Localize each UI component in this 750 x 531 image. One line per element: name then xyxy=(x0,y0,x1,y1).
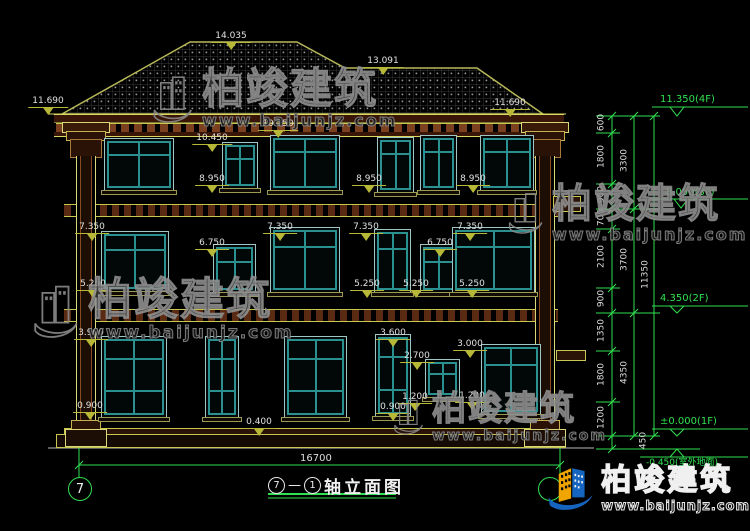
title-text: 轴立面图 xyxy=(324,473,404,498)
elevation-mark: 6.750 xyxy=(423,232,457,257)
dim-segment: 1800 xyxy=(598,358,607,392)
window xyxy=(205,336,239,418)
elevation-mark: 0.400 xyxy=(242,411,276,436)
cad-elevation-drawing: 14.035 13.091 11.690 11.690 10.450 10.25… xyxy=(0,0,750,531)
floor-band-2f xyxy=(64,309,558,322)
window xyxy=(270,135,340,191)
window xyxy=(481,344,541,415)
axis-circle-7: 7 xyxy=(268,477,285,494)
dim-subtotal: 3700 xyxy=(621,243,630,277)
floor-elevation-label: ±0.000(1F) xyxy=(660,417,717,427)
dim-segment: 1200 xyxy=(598,401,607,435)
elevation-mark: 2.700 xyxy=(400,345,434,370)
dim-segment: 900 xyxy=(598,282,607,316)
floor-elevation-label: 8.050(3F) xyxy=(666,188,715,198)
elevation-mark: 5.250 xyxy=(350,273,384,298)
floor-elevation-label: 11.350(4F) xyxy=(660,95,715,105)
elevation-mark: 6.750 xyxy=(195,232,229,257)
plinth-base xyxy=(56,434,566,448)
brand-logo: 柏竣建筑 www.baijunjz.com xyxy=(543,446,750,531)
brand-logo-text: 柏竣建筑 xyxy=(601,464,750,497)
elevation-mark: 3.000 xyxy=(453,333,487,358)
side-ledge xyxy=(556,350,586,361)
elevation-mark: 7.350 xyxy=(349,216,383,241)
elevation-mark: 11.690 xyxy=(28,90,68,115)
dim-subtotal: 4350 xyxy=(621,356,630,390)
window xyxy=(420,135,457,191)
title-dash: — xyxy=(288,478,301,493)
dim-total: 11350 xyxy=(642,258,651,292)
side-cornice-projection xyxy=(553,196,581,212)
roof-cornice xyxy=(54,114,564,136)
elevation-mark: 8.950 xyxy=(195,168,229,193)
elevation-mark: 5.250 xyxy=(455,273,489,298)
dim-segment: 1350 xyxy=(598,314,607,348)
dim-segment: 700 xyxy=(598,201,607,235)
grid-bubble-7: 7 xyxy=(68,477,92,501)
elevation-mark: 1.200 xyxy=(455,385,489,410)
dim-subtotal: 3300 xyxy=(621,144,630,178)
total-width-dimension: 16700 xyxy=(300,453,332,464)
elevation-mark: 10.450 xyxy=(192,127,232,152)
elevation-mark: 3.900 xyxy=(74,322,108,347)
roof-hatch xyxy=(62,42,543,114)
dentil-row xyxy=(56,123,562,132)
elevation-mark: 7.350 xyxy=(263,216,297,241)
brand-logo-icon xyxy=(543,449,599,529)
window xyxy=(101,336,167,418)
axis-circle-1: 1 xyxy=(304,477,321,494)
window xyxy=(104,138,174,191)
elevation-mark: 5.250 xyxy=(76,273,110,298)
elevation-mark: 14.035 xyxy=(211,25,251,50)
window xyxy=(284,336,347,418)
dim-segment: 1800 xyxy=(598,140,607,174)
dim-segment: 600 xyxy=(598,106,607,140)
drawing-title: 7 — 1 轴立面图 xyxy=(268,473,404,498)
dim-segment: 2100 xyxy=(598,240,607,274)
elevation-mark: 0.900 xyxy=(73,395,107,420)
elevation-mark: 10.250 xyxy=(258,113,298,138)
elevation-mark: 0.900 xyxy=(376,396,410,421)
elevation-mark: 7.350 xyxy=(453,216,487,241)
floor-elevation-label: 4.350(2F) xyxy=(660,294,709,304)
elevation-mark: 11.690 xyxy=(490,92,530,117)
elevation-mark: 3.600 xyxy=(376,322,410,347)
elevation-mark: 7.350 xyxy=(75,216,109,241)
elevation-mark: 8.950 xyxy=(352,168,386,193)
brand-logo-url: www.baijunjz.com xyxy=(601,499,750,514)
elevation-mark: 13.091 xyxy=(363,50,403,75)
window xyxy=(101,231,169,292)
elevation-mark: 5.250 xyxy=(399,273,433,298)
elevation-mark: 8.950 xyxy=(456,168,490,193)
